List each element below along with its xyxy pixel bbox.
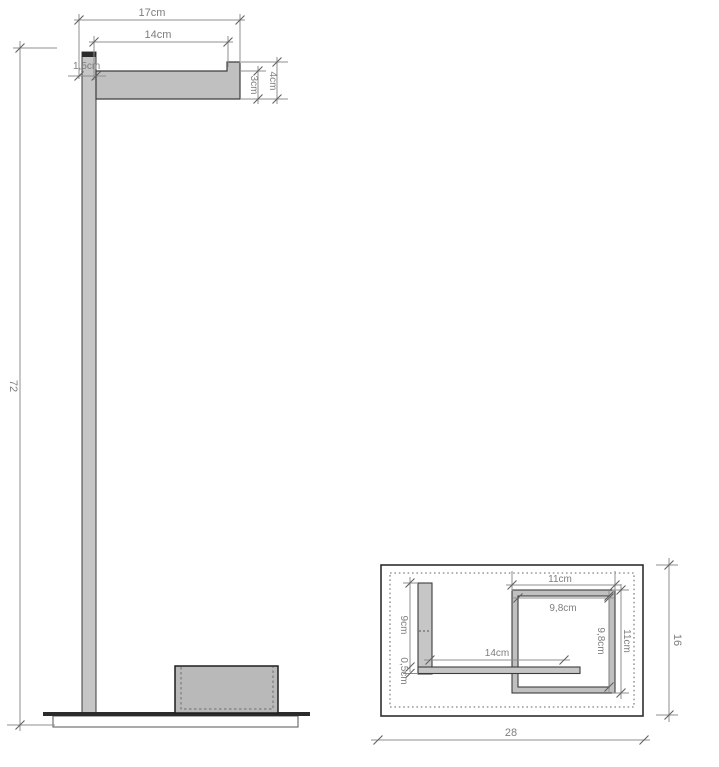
- dim-arm-thickness: 3cm 4cm: [241, 57, 288, 104]
- top-view: 11cm 9,8cm 9,8cm 11cm: [371, 558, 683, 745]
- dim-label-arm-length: 14cm: [485, 648, 509, 659]
- dim-total-height: 72: [7, 41, 57, 731]
- dim-label-total-height: 72: [7, 380, 19, 392]
- dim-label-frame-outer-height: 11cm: [621, 629, 632, 653]
- top-arm-bar: [418, 667, 580, 674]
- front-view: 72 17cm 14cm 1,5cm: [7, 7, 310, 731]
- front-base-plate: [43, 712, 310, 727]
- dim-label-bar-thickness: 0,5cm: [398, 657, 409, 684]
- front-pole: [82, 52, 96, 713]
- dim-label-arm-outer-width: 17cm: [139, 7, 166, 19]
- dim-base-width: 28: [371, 727, 650, 745]
- dim-label-frame-inner-height: 9,8cm: [595, 627, 606, 654]
- dim-label-arm-inner-width: 14cm: [145, 29, 172, 41]
- dim-label-arm-thickness: 3cm: [248, 76, 259, 95]
- dim-label-base-depth: 16: [671, 634, 683, 646]
- front-arm: [96, 62, 240, 99]
- front-box: [175, 666, 278, 713]
- dim-label-base-width: 28: [505, 727, 517, 739]
- dim-label-pole-depth: 9cm: [398, 616, 409, 635]
- dim-label-frame-inner-width: 9,8cm: [549, 603, 576, 614]
- dim-label-arm-end-height: 4cm: [267, 72, 278, 91]
- technical-drawing-canvas: 72 17cm 14cm 1,5cm: [0, 0, 719, 767]
- dim-base-depth: 16: [656, 558, 683, 722]
- dim-label-pole-width: 1,5cm: [73, 61, 100, 72]
- dim-label-frame-outer-width: 11cm: [548, 574, 572, 585]
- dimension-drawing-svg: 72 17cm 14cm 1,5cm: [0, 0, 719, 767]
